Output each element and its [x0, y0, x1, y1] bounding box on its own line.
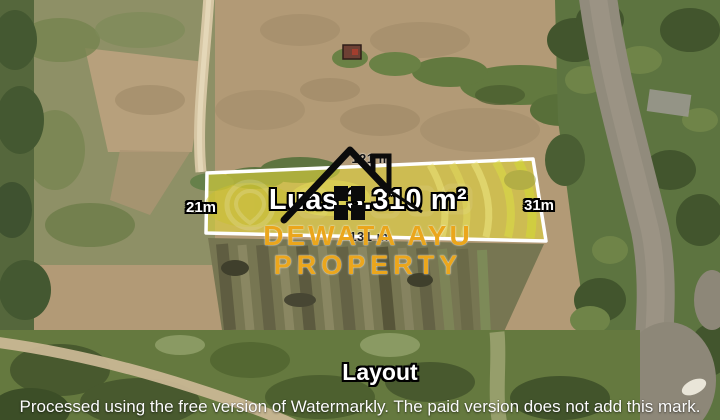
house-windows [334, 186, 365, 220]
dimension-label-left: 21m [186, 199, 216, 216]
layout-caption: Layout [310, 359, 450, 386]
listing-image: 121 m 131 m 21m 31m Luas 3.310 m² DEWATA… [0, 0, 720, 420]
agency-name-line2: PROPERTY [208, 251, 528, 280]
dimension-label-right: 31m [524, 197, 554, 214]
house-icon [270, 138, 430, 238]
watermarkly-notice: Processed using the free version of Wate… [0, 397, 720, 417]
hut [343, 45, 361, 59]
